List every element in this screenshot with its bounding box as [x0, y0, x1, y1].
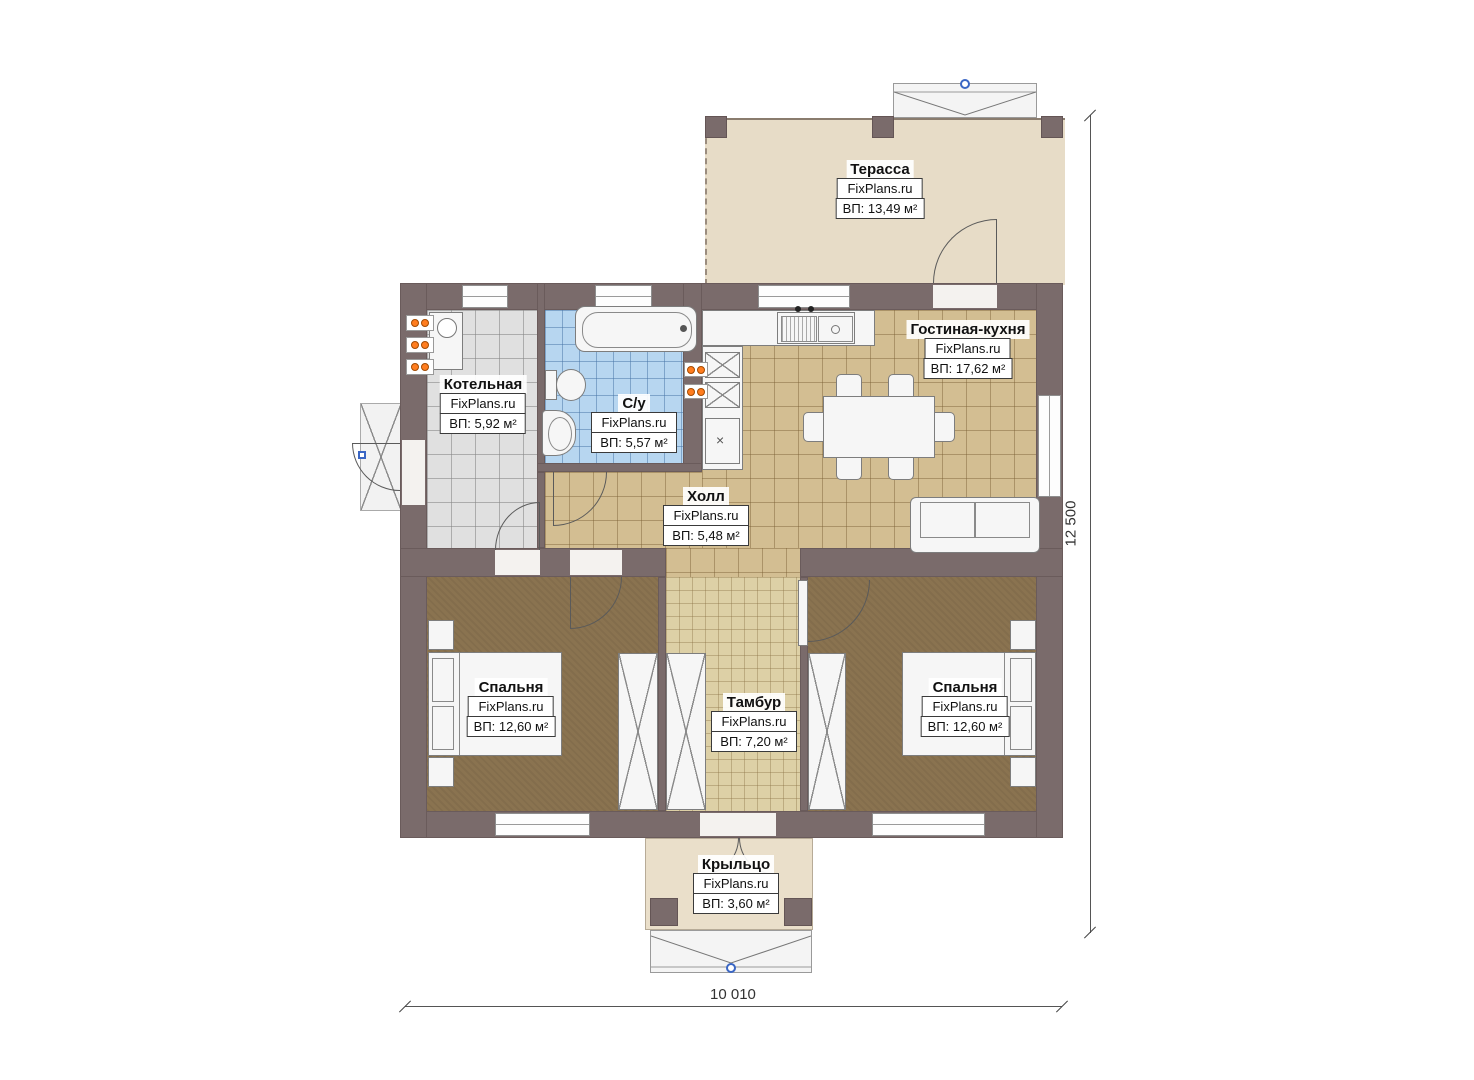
window: [1038, 395, 1061, 497]
room-brand: FixPlans.ru: [591, 412, 677, 433]
room-label-bedroom-right: Спальня FixPlans.ru ВП: 12,60 м²: [921, 678, 1010, 737]
room-label-tambur: Тамбур FixPlans.ru ВП: 7,20 м²: [711, 693, 797, 752]
wardrobe: [666, 653, 706, 810]
level-marker-icon: [358, 451, 366, 459]
sink-drainboard: [781, 316, 817, 342]
washbasin: [542, 410, 576, 456]
dimension-line-height: [1090, 115, 1091, 933]
terrace-pillar: [1041, 116, 1063, 138]
room-name: Спальня: [929, 678, 1002, 697]
room-area: ВП: 17,62 м²: [924, 358, 1013, 379]
room-label-porch: Крыльцо FixPlans.ru ВП: 3,60 м²: [693, 855, 779, 914]
appliance-x-icon: ×: [716, 432, 724, 448]
room-name: Тамбур: [723, 693, 785, 712]
sofa: [910, 497, 1040, 553]
door-opening: [933, 285, 997, 308]
wall-tambur-left: [658, 577, 666, 811]
door-leaf: [798, 580, 808, 646]
room-name: Крыльцо: [698, 855, 774, 874]
terrace-pillar: [705, 116, 727, 138]
nightstand: [428, 620, 454, 650]
door-leaf: [996, 219, 997, 283]
porch-pillar: [650, 898, 678, 926]
floor-plan: × Терасса FixPlans.ru ВП: 13,49 м² Гости…: [0, 0, 1474, 1080]
boiler-icon: [437, 318, 457, 338]
room-area: ВП: 12,60 м²: [467, 716, 556, 737]
terrace-pillar: [872, 116, 894, 138]
nightstand: [428, 757, 454, 787]
door-leaf: [570, 577, 571, 629]
dimension-height-label: 12 500: [1062, 501, 1079, 547]
sofa-cushion: [920, 502, 975, 538]
room-brand: FixPlans.ru: [837, 178, 923, 199]
stove-knobs-icon: [684, 384, 708, 399]
wall-bathroom-bottom: [537, 463, 702, 472]
room-area: ВП: 5,92 м²: [440, 413, 526, 434]
door-leaf: [539, 502, 540, 550]
window: [462, 285, 508, 308]
door-opening: [495, 550, 540, 575]
radiator-icon: [406, 337, 434, 353]
room-name: С/у: [618, 394, 649, 413]
room-brand: FixPlans.ru: [925, 338, 1011, 359]
room-brand: FixPlans.ru: [693, 873, 779, 894]
stove-burners: [705, 352, 740, 378]
porch-pillar: [784, 898, 812, 926]
window: [758, 285, 850, 308]
room-brand: FixPlans.ru: [468, 696, 554, 717]
window: [595, 285, 652, 308]
level-marker-icon: [960, 79, 970, 89]
kitchen-sink: [777, 312, 855, 344]
bathtub-inner: [582, 312, 692, 348]
pillow: [432, 706, 454, 750]
bathtub: [575, 306, 697, 352]
nightstand: [1010, 620, 1036, 650]
room-area: ВП: 7,20 м²: [711, 731, 797, 752]
toilet-bowl: [556, 369, 586, 401]
door-opening: [402, 440, 425, 505]
pillow: [432, 658, 454, 702]
door-opening: [700, 813, 776, 836]
room-brand: FixPlans.ru: [663, 505, 749, 526]
window: [495, 813, 590, 836]
door-opening: [570, 550, 622, 575]
room-area: ВП: 5,48 м²: [663, 525, 749, 546]
washbasin-bowl: [548, 417, 572, 451]
faucet-icon: [680, 325, 687, 332]
room-name: Спальня: [475, 678, 548, 697]
dimension-line-width: [405, 1006, 1062, 1007]
door-leaf: [553, 472, 554, 526]
pillow: [1010, 658, 1032, 702]
wardrobe: [618, 653, 658, 810]
room-area: ВП: 3,60 м²: [693, 893, 779, 914]
pillow: [1010, 706, 1032, 750]
corridor-floor: [666, 548, 800, 577]
sink-drain-icon: [831, 325, 840, 334]
level-marker-icon: [726, 963, 736, 973]
dimension-width-label: 10 010: [710, 986, 756, 1003]
room-area: ВП: 13,49 м²: [836, 198, 925, 219]
stove-knobs-icon: [684, 362, 708, 377]
room-name: Котельная: [440, 375, 527, 394]
blanket-line: [459, 653, 460, 755]
radiator-icon: [406, 359, 434, 375]
nightstand: [1010, 757, 1036, 787]
room-label-living-kitchen: Гостиная-кухня FixPlans.ru ВП: 17,62 м²: [907, 320, 1030, 379]
stove-burners: [705, 382, 740, 408]
faucet-icon: [808, 306, 814, 312]
window: [872, 813, 985, 836]
room-label-terrace: Терасса FixPlans.ru ВП: 13,49 м²: [836, 160, 925, 219]
radiator-icon: [406, 315, 434, 331]
room-label-hall: Холл FixPlans.ru ВП: 5,48 м²: [663, 487, 749, 546]
wardrobe: [808, 653, 846, 810]
door-leaf: [352, 443, 400, 444]
room-name: Терасса: [846, 160, 913, 179]
room-name: Холл: [683, 487, 729, 506]
dining-table: [823, 396, 935, 458]
sofa-cushion: [975, 502, 1030, 538]
room-label-bathroom: С/у FixPlans.ru ВП: 5,57 м²: [591, 394, 677, 453]
room-brand: FixPlans.ru: [440, 393, 526, 414]
room-name: Гостиная-кухня: [907, 320, 1030, 339]
room-label-boiler: Котельная FixPlans.ru ВП: 5,92 м²: [440, 375, 527, 434]
room-area: ВП: 12,60 м²: [921, 716, 1010, 737]
faucet-icon: [795, 306, 801, 312]
room-label-bedroom-left: Спальня FixPlans.ru ВП: 12,60 м²: [467, 678, 556, 737]
room-brand: FixPlans.ru: [711, 711, 797, 732]
room-area: ВП: 5,57 м²: [591, 432, 677, 453]
room-brand: FixPlans.ru: [922, 696, 1008, 717]
